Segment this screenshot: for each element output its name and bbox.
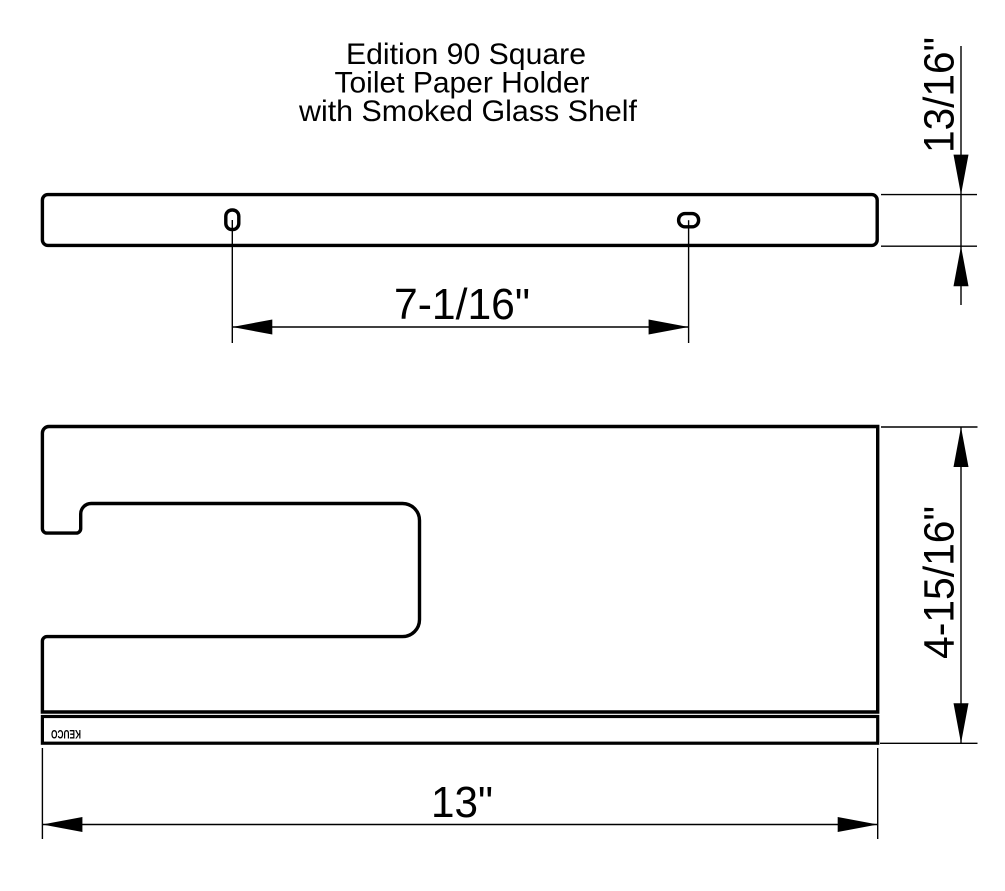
svg-text:13": 13" bbox=[431, 779, 493, 827]
svg-text:4-15/16": 4-15/16" bbox=[917, 506, 964, 659]
svg-text:with Smoked Glass Shelf: with Smoked Glass Shelf bbox=[298, 95, 638, 128]
svg-text:13/16": 13/16" bbox=[917, 37, 964, 153]
svg-text:7-1/16": 7-1/16" bbox=[394, 281, 530, 329]
svg-text:KEUCO: KEUCO bbox=[51, 727, 81, 741]
